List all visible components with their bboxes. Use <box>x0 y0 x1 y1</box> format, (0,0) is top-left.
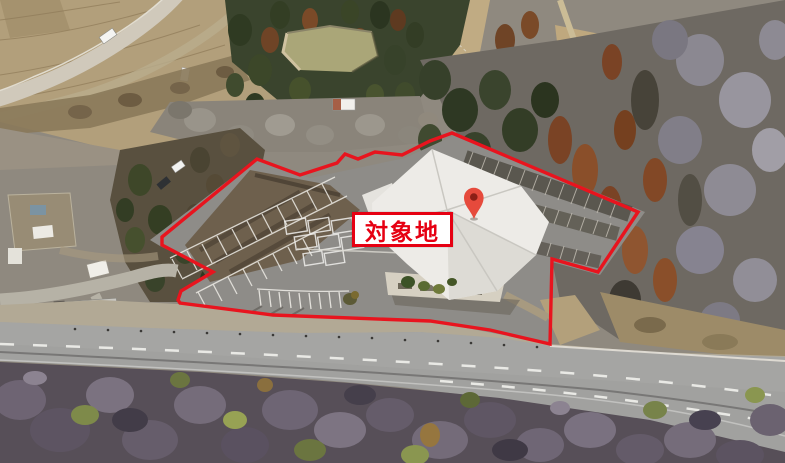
site-label-text: 対象地 <box>365 213 440 247</box>
annotated-aerial-map: 対象地 <box>0 0 785 463</box>
site-label: 対象地 <box>352 212 453 247</box>
pin-dot <box>470 193 478 201</box>
pond <box>283 26 378 72</box>
